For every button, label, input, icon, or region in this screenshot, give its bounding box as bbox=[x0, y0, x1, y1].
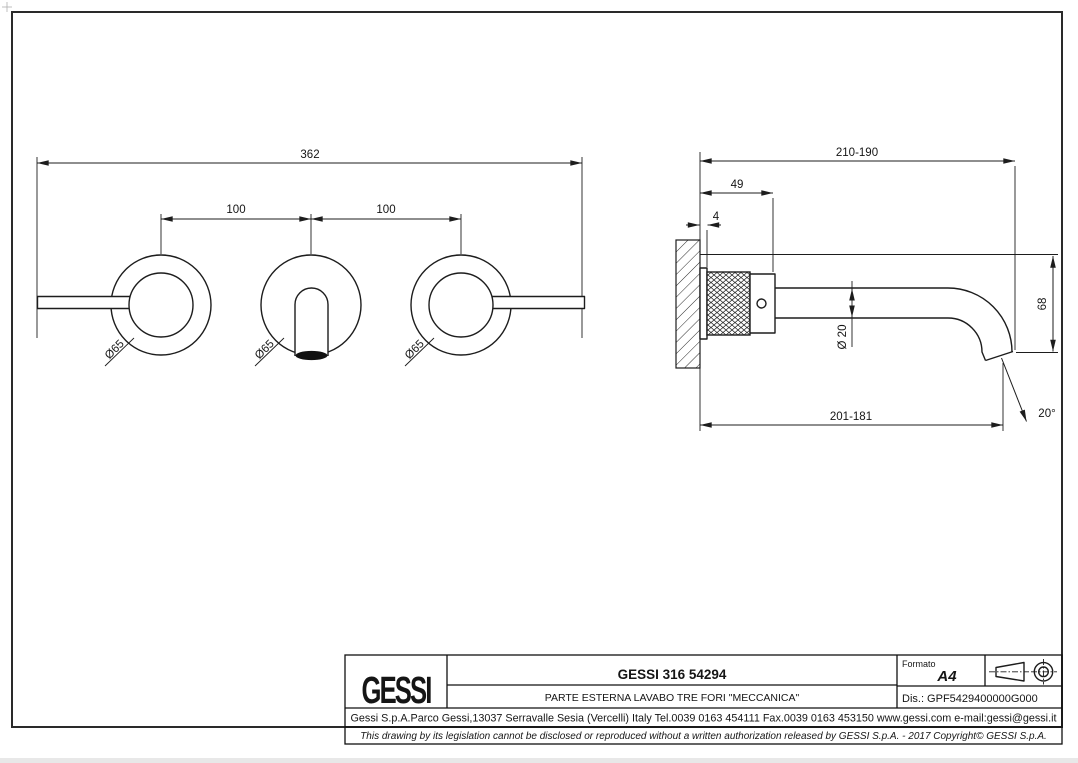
dim-depth-range-label: 210-190 bbox=[836, 147, 878, 159]
legal-copyright-line: This drawing by its legislation cannot b… bbox=[360, 731, 1047, 742]
format-label: Formato bbox=[902, 659, 936, 669]
knurled-body bbox=[707, 272, 750, 335]
center-spout-front bbox=[261, 255, 361, 360]
spout-outlet-opening bbox=[296, 351, 328, 360]
dim-spacing-right-label: 100 bbox=[376, 204, 395, 216]
wall-flange bbox=[700, 268, 707, 339]
sheet-border bbox=[12, 12, 1062, 727]
dim-rosette-right-label: Ø65 bbox=[403, 338, 427, 362]
dim-rosette-center-label: Ø65 bbox=[253, 338, 277, 362]
dim-rosette-left-label: Ø65 bbox=[103, 338, 127, 362]
gessi-logo: GESSI bbox=[362, 668, 431, 711]
front-view: 362 100 100 Ø65 Ø65 bbox=[37, 149, 585, 366]
drawing-number: Dis.: GPF5429400000G000 bbox=[902, 693, 1038, 705]
format-value: A4 bbox=[936, 668, 957, 685]
set-screw-hole bbox=[757, 299, 766, 308]
projection-symbol-icon bbox=[989, 659, 1057, 685]
dim-spout-diameter-label: Ø 20 bbox=[837, 325, 849, 350]
corner-registration-mark bbox=[2, 2, 12, 12]
side-view: 210-190 49 4 Ø 20 68 201-181 20° bbox=[676, 147, 1058, 431]
dim-total-width-label: 362 bbox=[300, 149, 319, 161]
dim-flange-thickness-label: 4 bbox=[713, 211, 720, 223]
product-code: GESSI 316 54294 bbox=[618, 667, 727, 682]
right-handle bbox=[411, 255, 585, 355]
title-block: GESSI GESSI 316 54294 PARTE ESTERNA LAVA… bbox=[345, 655, 1062, 744]
dim-spacing-left-label: 100 bbox=[226, 204, 245, 216]
spout-tube bbox=[775, 288, 1013, 361]
technical-drawing-sheet: 362 100 100 Ø65 Ø65 bbox=[0, 0, 1078, 758]
dim-outlet-angle-label: 20° bbox=[1038, 408, 1055, 420]
company-address-line: Gessi S.p.A.Parco Gessi,13037 Serravalle… bbox=[351, 713, 1057, 725]
dim-drop-height-label: 68 bbox=[1037, 298, 1049, 311]
rosette-diameter-annotations: Ø65 Ø65 Ø65 bbox=[103, 338, 434, 366]
product-description: PARTE ESTERNA LAVABO TRE FORI "MECCANICA… bbox=[545, 692, 800, 704]
wall-section-hatch bbox=[676, 240, 700, 368]
left-handle bbox=[38, 255, 212, 355]
dim-reach-range-label: 201-181 bbox=[830, 411, 872, 423]
dim-body-depth-label: 49 bbox=[731, 179, 744, 191]
drawing-canvas: 362 100 100 Ø65 Ø65 bbox=[0, 0, 1078, 758]
